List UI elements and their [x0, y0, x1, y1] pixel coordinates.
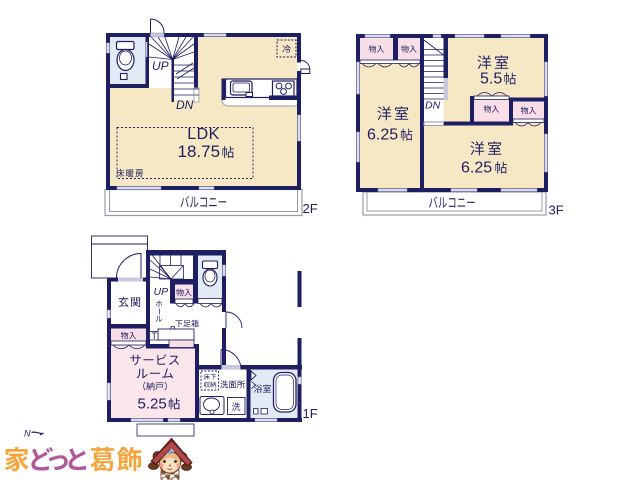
svg-text:1F: 1F: [303, 406, 318, 421]
svg-text:T: T: [152, 331, 158, 341]
svg-text:5.25: 5.25: [138, 396, 167, 413]
svg-text:5.5: 5.5: [480, 71, 502, 88]
svg-text:6.25: 6.25: [367, 127, 398, 144]
svg-text:DN: DN: [176, 98, 194, 112]
svg-text:6.25: 6.25: [461, 160, 492, 177]
svg-text:2F: 2F: [303, 201, 318, 216]
svg-text:UP: UP: [152, 59, 169, 73]
svg-text:N: N: [24, 429, 31, 439]
svg-text:DN: DN: [425, 100, 441, 112]
svg-text:3F: 3F: [549, 203, 564, 218]
svg-text:UP: UP: [154, 286, 169, 298]
svg-text:18.75: 18.75: [178, 142, 221, 161]
svg-text:LDK: LDK: [187, 126, 220, 143]
